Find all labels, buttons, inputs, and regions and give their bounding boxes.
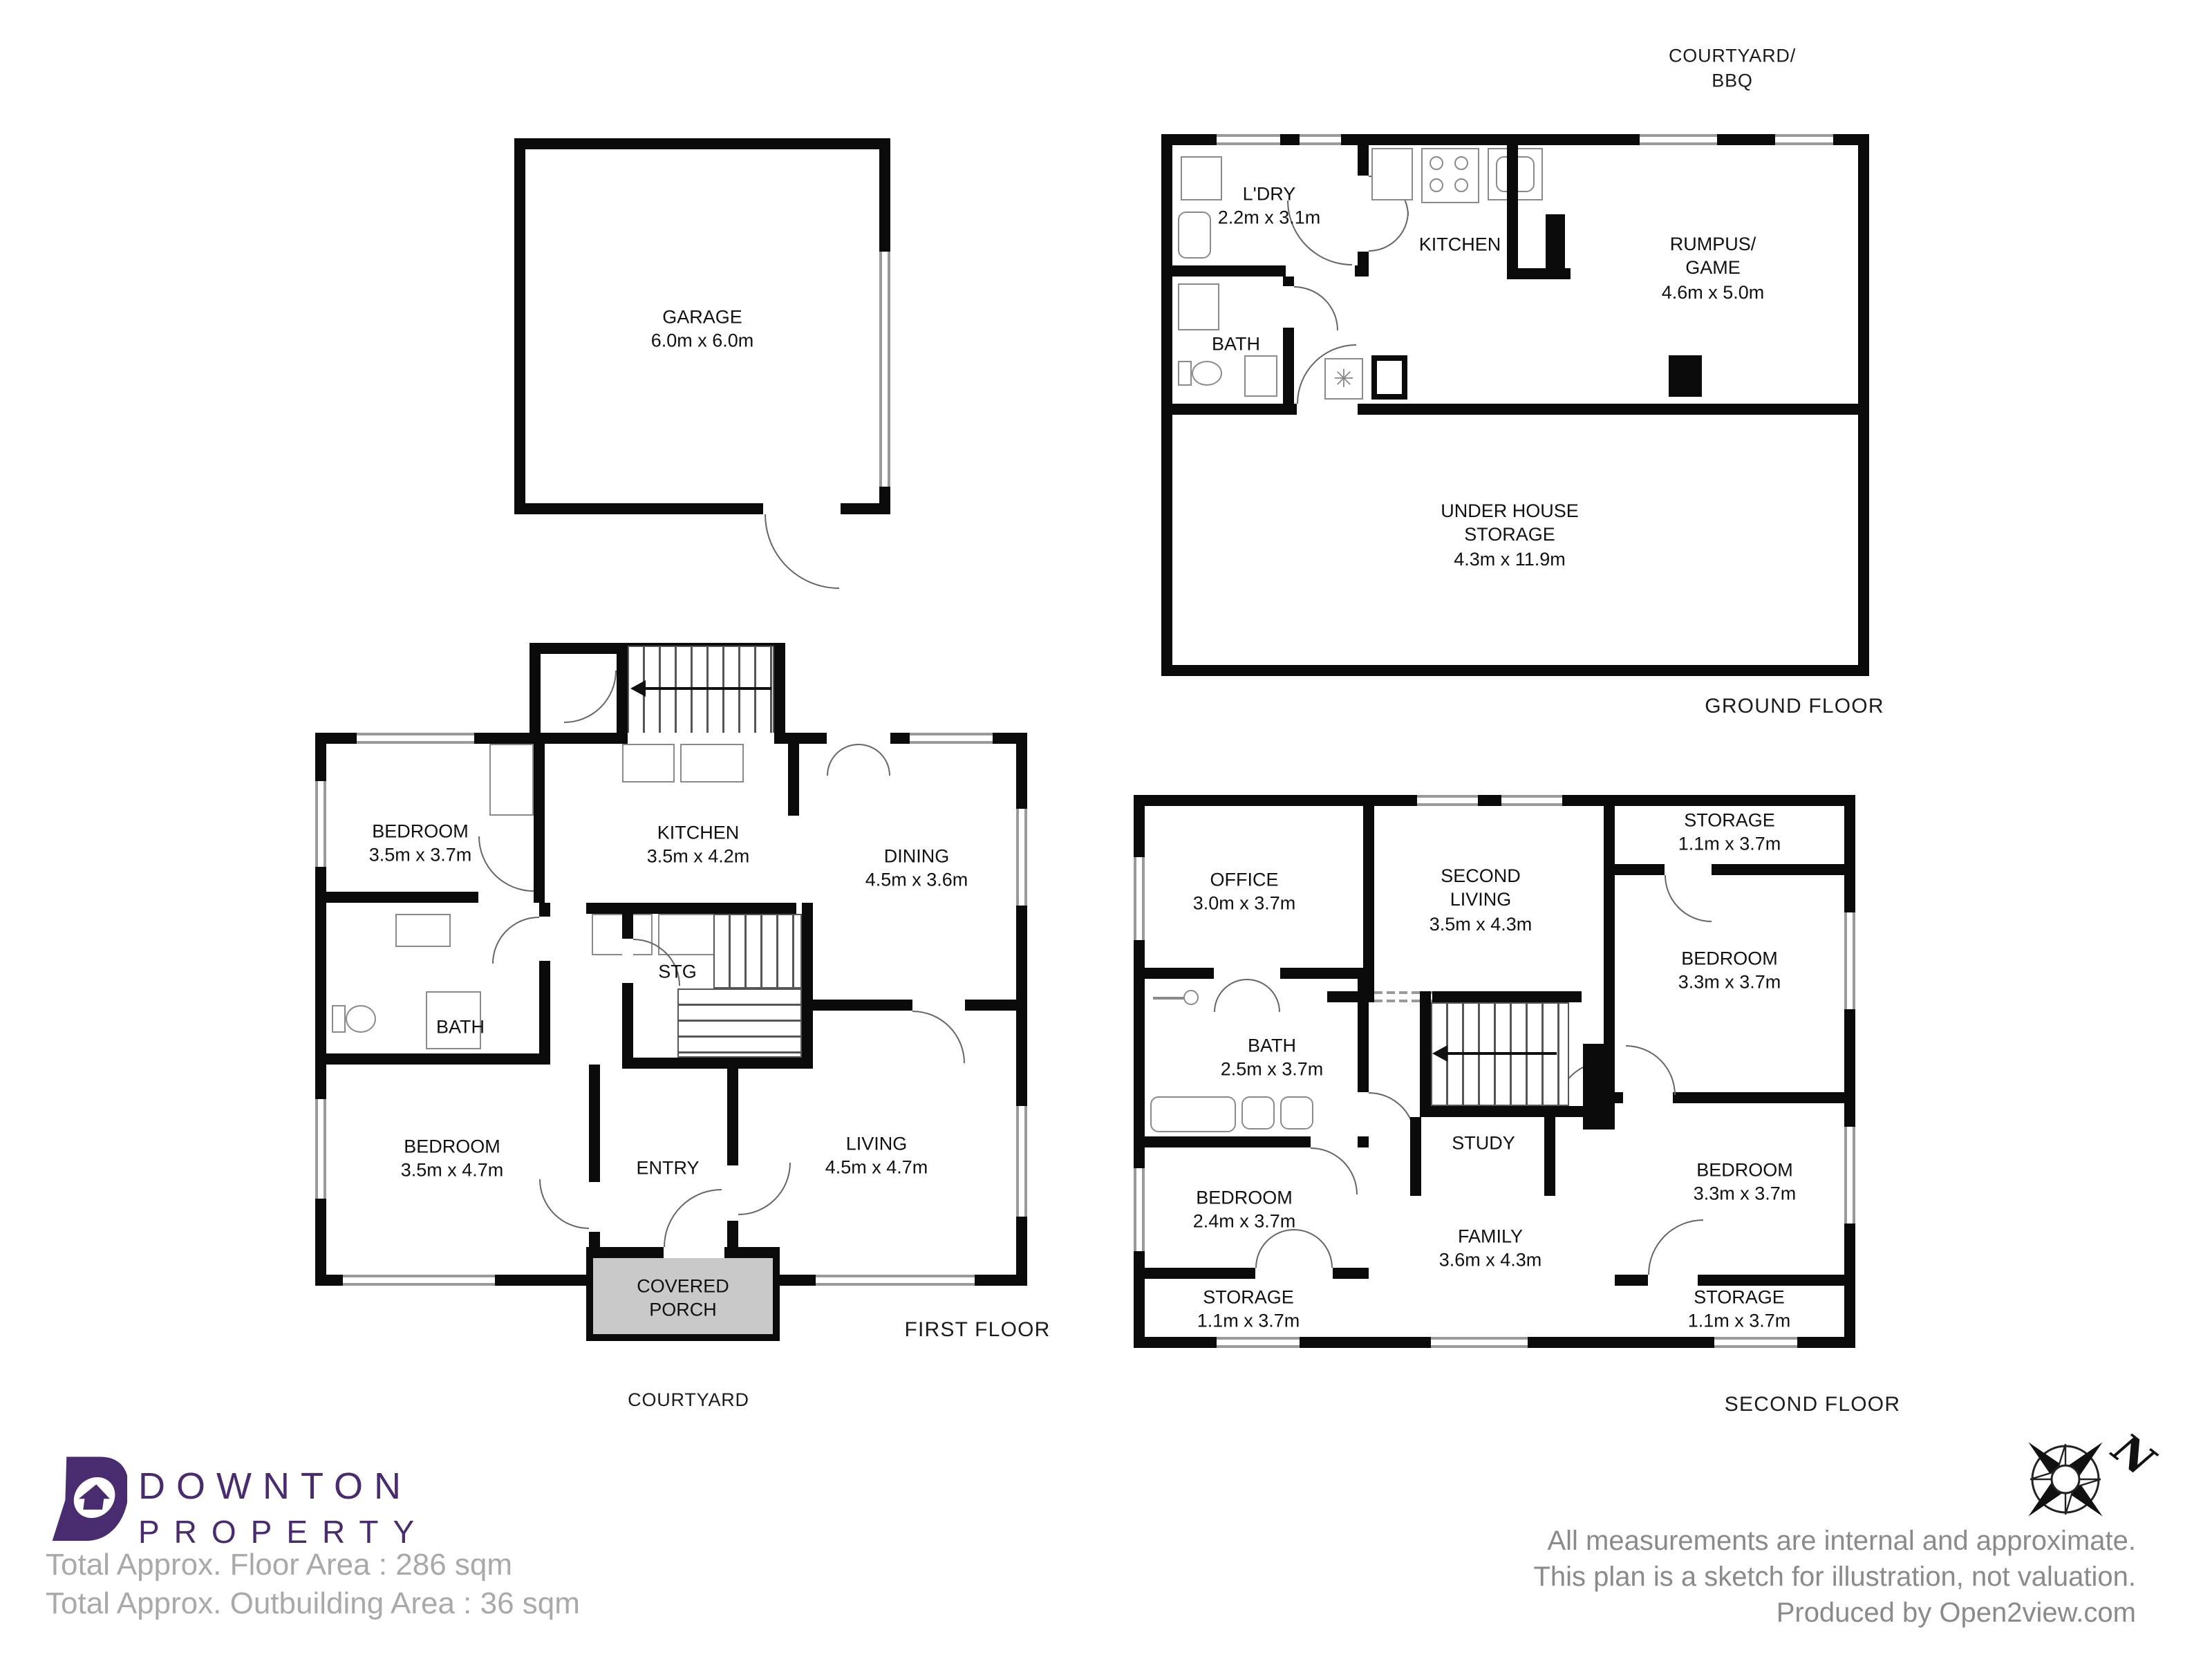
door-opening [589, 1182, 600, 1232]
wall [1161, 404, 1869, 415]
wall [802, 903, 813, 1069]
room-label-stg: STG [658, 960, 697, 984]
room-name: BEDROOM [369, 819, 472, 843]
wall [1134, 795, 1855, 806]
door-arc [1247, 979, 1280, 1012]
door-opening [664, 1247, 724, 1258]
window [1775, 134, 1833, 145]
door-arc [664, 1189, 722, 1247]
basin-icon [1280, 1096, 1313, 1130]
wall [1844, 795, 1855, 1348]
room-dims: 1.1m x 3.7m [1688, 1309, 1791, 1333]
room-dims: 3.3m x 3.7m [1694, 1182, 1797, 1206]
window [1217, 134, 1280, 145]
first-floor-plan: STG BATH COVERED PORCH [315, 643, 1027, 1362]
window [1640, 134, 1717, 145]
window [1134, 857, 1145, 940]
room-name: STORAGE [1441, 523, 1579, 547]
shower-arm-icon [1153, 997, 1186, 1000]
label-line: COURTYARD/ [1669, 44, 1796, 69]
room-label-bedroom-l: BEDROOM 2.4m x 3.7m [1193, 1185, 1296, 1233]
room-name: DINING [865, 844, 968, 868]
shower-head-icon [1183, 990, 1199, 1005]
window [1844, 1127, 1855, 1224]
wall [514, 138, 890, 149]
room-dims: 6.0m x 6.0m [651, 329, 754, 353]
washing-machine-icon [1181, 156, 1222, 200]
toilet-icon [346, 1005, 376, 1033]
dishwasher-icon [622, 744, 675, 782]
door-arc [1214, 979, 1247, 1012]
door-opening [1311, 1136, 1358, 1147]
room-dims: 2.4m x 3.7m [1193, 1210, 1296, 1234]
door-arc [827, 744, 859, 776]
burner-icon [1430, 156, 1443, 170]
wall [1161, 665, 1869, 676]
room-label-bedroom-tr: BEDROOM 3.3m x 3.7m [1678, 946, 1781, 994]
wall [622, 1058, 813, 1069]
room-label-storage-bl: STORAGE 1.1m x 3.7m [1197, 1285, 1300, 1333]
room-name: STUDY [1452, 1132, 1515, 1156]
door-opening [763, 503, 841, 514]
wall [774, 643, 785, 733]
heater-fan-icon: ✳ [1324, 358, 1363, 400]
stairs-direction-line [644, 687, 771, 690]
disclaimer-line2: This plan is a sketch for illustration, … [1533, 1562, 2136, 1594]
window [357, 733, 474, 744]
stairs [713, 914, 802, 988]
stairs-direction-arrow [630, 680, 646, 697]
stove-icon [1421, 148, 1479, 203]
room-label-porch: COVERED PORCH [637, 1274, 729, 1322]
door-opening [827, 733, 890, 744]
door-arc [765, 514, 839, 589]
door-opening [727, 1165, 738, 1221]
room-dims: 3.5m x 4.7m [401, 1159, 504, 1183]
window [315, 781, 326, 867]
shower-icon [1178, 283, 1219, 330]
window [1417, 795, 1478, 806]
room-label-laundry: L'DRY 2.2m x 3.1m [1218, 182, 1321, 229]
room-label-family: FAMILY 3.6m x 4.3m [1439, 1224, 1542, 1272]
total-floor-area-text: Total Approx. Floor Area : 286 sqm [46, 1547, 512, 1583]
stair-opening [628, 733, 774, 744]
room-name: UNDER HOUSE [1441, 499, 1579, 523]
door-arc [1369, 212, 1409, 252]
door-opening [478, 892, 534, 903]
vanity-icon [395, 914, 451, 947]
wall [788, 733, 799, 816]
burner-icon [1454, 178, 1468, 192]
wall [1546, 214, 1565, 279]
room-name: RUMPUS/ [1662, 232, 1765, 256]
door-opening [1665, 864, 1712, 875]
room-label-dining: DINING 4.5m x 3.6m [865, 844, 968, 892]
room-name: LIVING [1430, 888, 1533, 912]
wall [1544, 1117, 1555, 1196]
wall [1420, 1106, 1591, 1117]
closet-icon [489, 744, 534, 816]
wall [1410, 1117, 1421, 1196]
room-dims: 4.6m x 5.0m [1662, 280, 1765, 304]
wall [529, 643, 541, 744]
room-dims: 3.0m x 3.7m [1193, 892, 1296, 916]
room-name: BEDROOM [401, 1134, 504, 1159]
label-line: BBQ [1669, 69, 1796, 94]
room-label-entry: ENTRY [636, 1156, 699, 1181]
hot-water-unit-icon [1371, 355, 1407, 400]
room-name: STORAGE [1678, 808, 1781, 832]
window [910, 733, 993, 744]
room-dims: 4.5m x 4.7m [825, 1156, 928, 1180]
door-arc [859, 744, 890, 776]
room-name: STG [658, 960, 697, 984]
room-label-study: STUDY [1452, 1132, 1515, 1156]
door-arc [1665, 875, 1712, 922]
stairs-direction-line [1446, 1052, 1557, 1055]
door-opening [1214, 968, 1280, 979]
room-label-office: OFFICE 3.0m x 3.7m [1193, 868, 1296, 915]
window [1134, 1168, 1145, 1251]
brand-name-line1: DOWNTON [138, 1465, 412, 1508]
wall [1507, 134, 1518, 279]
room-name: GARAGE [651, 305, 754, 329]
second-floor-plan: BATH 2.5m x 3.7m STUDY OFFICE 3.0m x 3.7… [1134, 795, 1855, 1348]
stairs [628, 646, 774, 737]
room-name: ENTRY [636, 1156, 699, 1181]
disclaimer-line3: Produced by Open2view.com [1777, 1598, 2136, 1630]
room-label-storage-tr: STORAGE 1.1m x 3.7m [1678, 808, 1781, 856]
door-arc [1294, 1229, 1333, 1268]
room-label-rumpus: RUMPUS/ GAME 4.6m x 5.0m [1662, 232, 1765, 304]
room-name: COVERED [637, 1274, 729, 1298]
stairs-direction-arrow [1432, 1045, 1447, 1062]
room-dims: 2.5m x 3.7m [1221, 1058, 1324, 1082]
room-label-bath1: BATH [436, 1015, 485, 1040]
room-dims: 3.6m x 4.3m [1439, 1248, 1542, 1273]
wall [1420, 991, 1431, 1117]
toilet-cistern-icon [1178, 361, 1192, 386]
room-label-bedroom1: BEDROOM 3.5m x 3.7m [369, 819, 472, 867]
window [1016, 809, 1027, 906]
vanity-icon [1244, 355, 1277, 397]
room-label-garage: GARAGE 6.0m x 6.0m [651, 305, 754, 353]
room-name: OFFICE [1193, 868, 1296, 892]
room-name: BATH [436, 1015, 485, 1040]
room-label-bedroom-br: BEDROOM 3.3m x 3.7m [1694, 1158, 1797, 1206]
door-opening [539, 917, 550, 961]
wall [1134, 1268, 1369, 1279]
stairs [677, 988, 802, 1058]
room-name: SECOND [1430, 864, 1533, 888]
room-name: L'DRY [1218, 182, 1321, 206]
door-opening [622, 939, 633, 983]
toilet-cistern-icon [332, 1005, 346, 1033]
room-name: STORAGE [1197, 1285, 1300, 1309]
sink-icon [680, 744, 744, 782]
room-label-kitchen: KITCHEN [1419, 233, 1501, 257]
fridge-icon [1371, 148, 1413, 200]
room-dims: 3.5m x 4.2m [647, 845, 750, 869]
wall [622, 914, 633, 1058]
door-arc [1369, 1092, 1416, 1139]
door-arc [1255, 1229, 1294, 1268]
room-name: BATH [1212, 332, 1260, 357]
wall [1615, 864, 1855, 875]
door-arc [478, 836, 534, 892]
door-opening [1255, 1268, 1333, 1279]
compass-icon: N [2007, 1410, 2159, 1541]
window [1501, 795, 1562, 806]
door-arc [912, 1011, 965, 1063]
second-floor-label: SECOND FLOOR [1725, 1393, 1900, 1416]
room-dims: 3.3m x 3.7m [1678, 971, 1781, 995]
window [343, 1275, 495, 1286]
door-arc [1311, 1147, 1358, 1194]
wall [514, 138, 525, 514]
room-name: PORCH [637, 1298, 729, 1322]
door-opening [1358, 1092, 1369, 1139]
room-name: BEDROOM [1694, 1158, 1797, 1182]
wall [1432, 991, 1582, 1002]
burner-icon [1454, 156, 1468, 170]
room-name: KITCHEN [647, 821, 750, 845]
window [879, 252, 890, 487]
door-arc [539, 1179, 589, 1229]
room-label-living: LIVING 4.5m x 4.7m [825, 1132, 928, 1179]
room-label-kitchen1: KITCHEN 3.5m x 4.2m [647, 821, 750, 868]
window [1300, 134, 1341, 145]
door-opening [1648, 1275, 1698, 1286]
ground-floor-label: GROUND FLOOR [1705, 695, 1884, 718]
door-arc [564, 671, 617, 723]
door-opening [1297, 404, 1358, 415]
window [1217, 1337, 1300, 1348]
brand-name-line2: PROPERTY [138, 1514, 429, 1551]
room-dims: 3.5m x 3.7m [369, 843, 472, 868]
room-label-bath: BATH [1212, 332, 1260, 357]
first-floor-label: FIRST FLOOR [905, 1318, 1051, 1342]
garage-plan: GARAGE 6.0m x 6.0m [514, 138, 890, 514]
door-opening [1358, 176, 1369, 252]
window [1714, 1337, 1797, 1348]
window [1844, 912, 1855, 1009]
wall [802, 1000, 912, 1011]
window [1431, 1337, 1528, 1348]
room-dims: 1.1m x 3.7m [1197, 1309, 1300, 1333]
wall [589, 1065, 600, 1275]
room-label-bedroom2: BEDROOM 3.5m x 4.7m [401, 1134, 504, 1182]
courtyard-label: COURTYARD [628, 1388, 749, 1413]
room-dims: 4.3m x 11.9m [1441, 547, 1579, 571]
door-opening [1283, 286, 1294, 328]
ground-floor-plan: L'DRY 2.2m x 3.1m BATH KITCHEN RUMPU [1161, 134, 1869, 676]
room-name: GAME [1662, 256, 1765, 281]
window [315, 1099, 326, 1199]
toilet-icon [1192, 361, 1222, 386]
room-dims: 4.5m x 3.6m [865, 868, 968, 892]
door-arc [492, 917, 539, 964]
room-name: FAMILY [1439, 1224, 1542, 1248]
room-label-second-living: SECOND LIVING 3.5m x 4.3m [1430, 864, 1533, 936]
burner-icon [1430, 178, 1443, 192]
wall [586, 903, 796, 914]
chimney-block [1669, 355, 1702, 397]
bathtub-icon [1150, 1096, 1236, 1132]
room-label-bath2: BATH 2.5m x 3.7m [1221, 1033, 1324, 1081]
room-name: STORAGE [1688, 1285, 1791, 1309]
compass-north-label: N [2102, 1423, 2159, 1486]
wall [315, 1053, 550, 1065]
room-name: BEDROOM [1193, 1185, 1296, 1210]
room-dims: 3.5m x 4.3m [1430, 912, 1533, 936]
downton-logo-icon [50, 1454, 127, 1546]
room-label-under-house-storage: UNDER HOUSE STORAGE 4.3m x 11.9m [1441, 499, 1579, 571]
window [816, 1275, 975, 1286]
wall [965, 1000, 1016, 1011]
door-arc [1294, 286, 1338, 330]
room-name: KITCHEN [1419, 233, 1501, 257]
window [1016, 1106, 1027, 1217]
total-outbuilding-area-text: Total Approx. Outbuilding Area : 36 sqm [46, 1586, 580, 1622]
wall [617, 643, 628, 733]
room-name: LIVING [825, 1132, 928, 1156]
room-label-storage-br: STORAGE 1.1m x 3.7m [1688, 1285, 1791, 1333]
room-dims: 1.1m x 3.7m [1678, 832, 1781, 856]
room-name: BEDROOM [1678, 946, 1781, 971]
wall [534, 733, 545, 901]
door-arc [738, 1163, 791, 1215]
room-dims: 2.2m x 3.1m [1218, 206, 1321, 230]
laundry-tub-icon [1178, 212, 1211, 259]
door-arc [1626, 1045, 1676, 1095]
courtyard-bbq-label: COURTYARD/ BBQ [1669, 44, 1796, 95]
floorplan-canvas: GARAGE 6.0m x 6.0m COURTYARD/ BBQ L'DR [0, 0, 2212, 1659]
basin-icon [1241, 1096, 1275, 1130]
door-arc [1648, 1219, 1703, 1275]
room-name: BATH [1221, 1033, 1324, 1058]
door-opening [1286, 265, 1355, 276]
